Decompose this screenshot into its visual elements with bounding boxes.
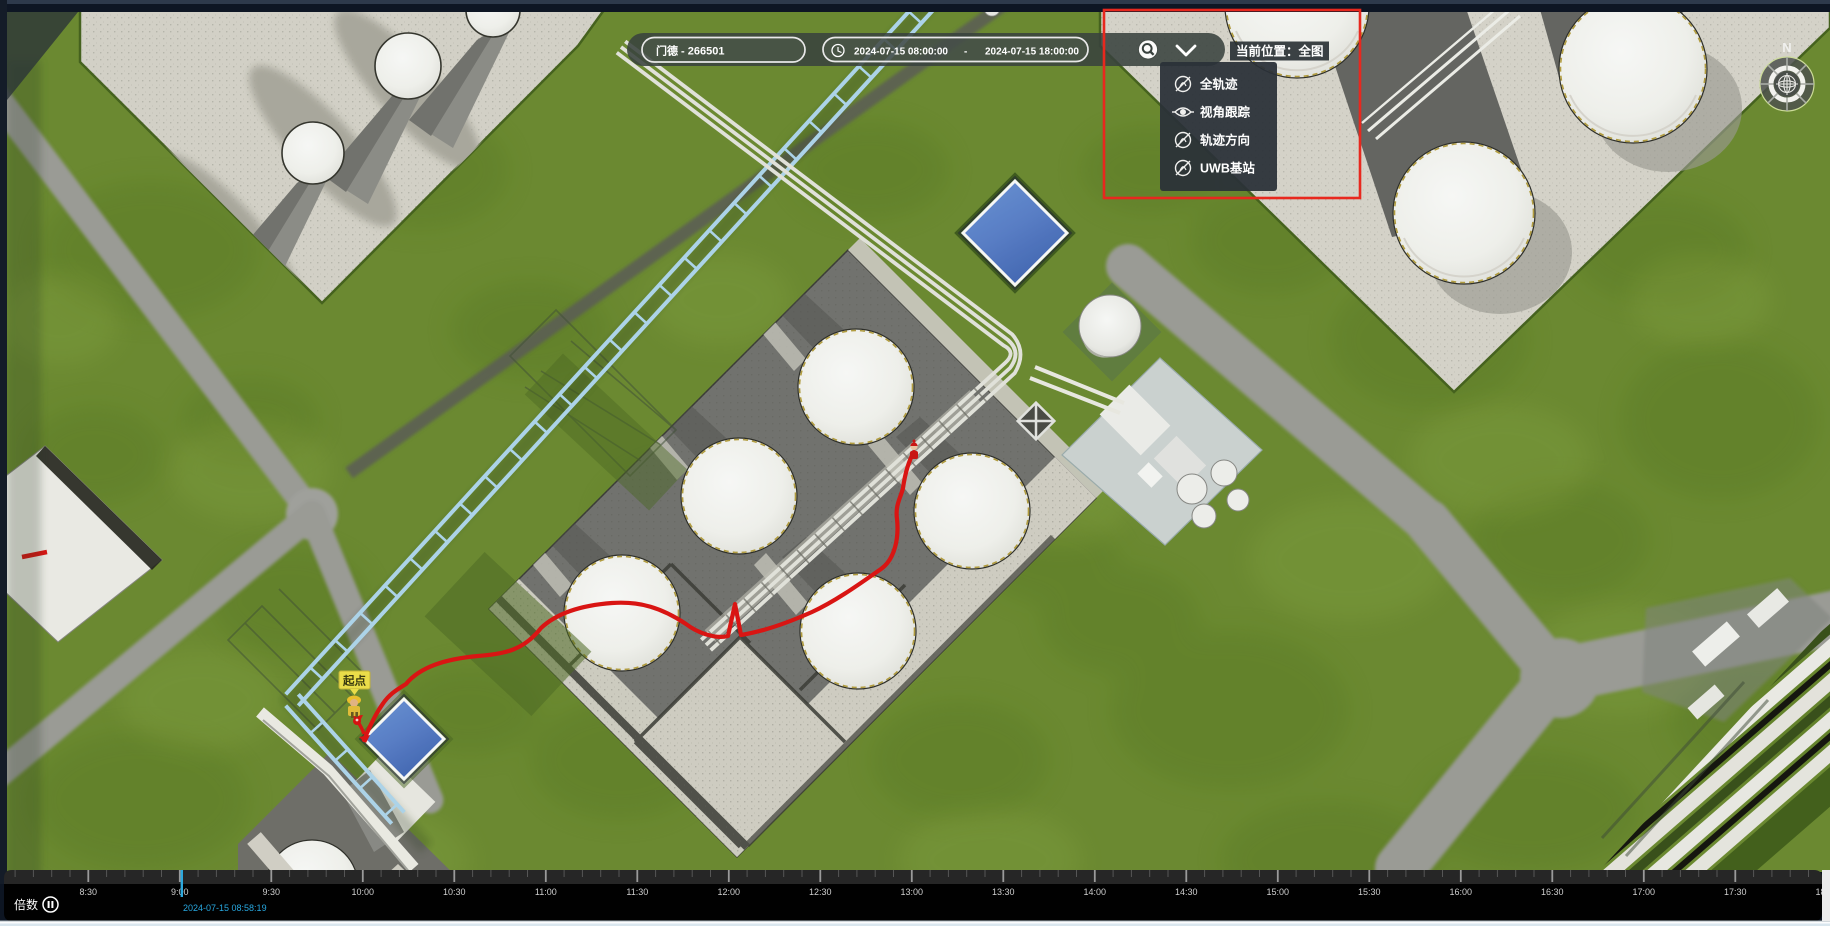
- svg-text:门德 - 266501: 门德 - 266501: [656, 44, 724, 58]
- svg-text:11:30: 11:30: [626, 887, 648, 897]
- svg-text:13:30: 13:30: [992, 887, 1015, 897]
- svg-text:12:00: 12:00: [718, 887, 741, 897]
- svg-text:10:00: 10:00: [352, 887, 375, 897]
- svg-text:9:00: 9:00: [171, 887, 189, 897]
- svg-text:17:30: 17:30: [1724, 887, 1747, 897]
- svg-text:倍数: 倍数: [14, 897, 38, 912]
- svg-text:15:00: 15:00: [1267, 887, 1290, 897]
- svg-text:N: N: [1782, 40, 1791, 55]
- svg-text:视角跟踪: 视角跟踪: [1200, 105, 1251, 120]
- svg-text:16:00: 16:00: [1450, 887, 1473, 897]
- svg-text:14:00: 14:00: [1084, 887, 1107, 897]
- svg-text:2024-07-15 08:58:19: 2024-07-15 08:58:19: [183, 903, 267, 913]
- svg-text:14:30: 14:30: [1175, 887, 1198, 897]
- svg-text:2024-07-15 08:00:00: 2024-07-15 08:00:00: [854, 47, 948, 58]
- svg-text:轨迹方向: 轨迹方向: [1200, 133, 1250, 148]
- svg-text:9:30: 9:30: [263, 887, 281, 897]
- svg-text:17:00: 17:00: [1633, 887, 1656, 897]
- svg-text:13:00: 13:00: [901, 887, 924, 897]
- svg-text:8:30: 8:30: [80, 887, 98, 897]
- svg-text:-: -: [964, 47, 967, 58]
- svg-text:15:30: 15:30: [1358, 887, 1381, 897]
- svg-text:10:30: 10:30: [443, 887, 466, 897]
- svg-text:2024-07-15 18:00:00: 2024-07-15 18:00:00: [985, 47, 1079, 58]
- svg-text:UWB基站: UWB基站: [1200, 161, 1255, 176]
- svg-text:16:30: 16:30: [1541, 887, 1564, 897]
- svg-text:11:00: 11:00: [535, 887, 557, 897]
- svg-text:当前位置：全图: 当前位置：全图: [1236, 44, 1324, 59]
- svg-text:12:30: 12:30: [809, 887, 832, 897]
- svg-text:全轨迹: 全轨迹: [1199, 77, 1238, 92]
